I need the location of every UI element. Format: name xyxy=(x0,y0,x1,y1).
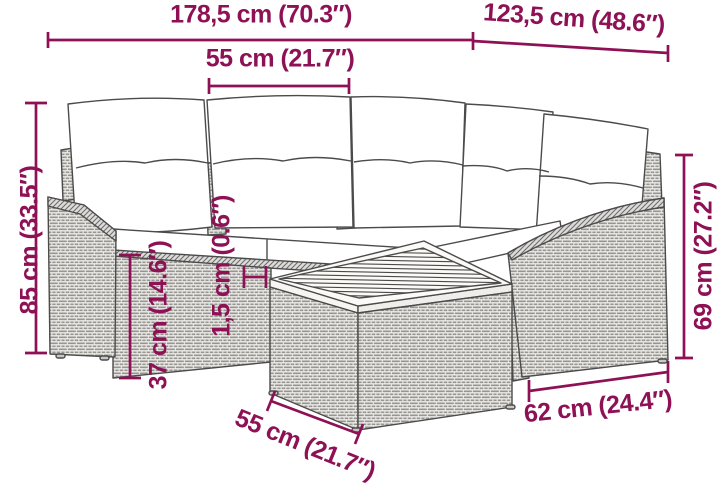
label-total-height: 85 cm (33.5″) xyxy=(18,166,43,315)
label-right-section-height: 69 cm (27.2″) xyxy=(692,182,717,331)
back-cushions xyxy=(68,96,648,243)
dim-line-right-width xyxy=(473,41,668,62)
product-dimension-diagram: 178,5 cm (70.3″) 123,5 cm (48.6″) 55 cm … xyxy=(0,0,720,490)
label-tabletop-thickness: 1,5 cm (0.6″) xyxy=(210,195,235,337)
label-cushion-width: 55 cm (21.7″) xyxy=(206,47,355,72)
dim-line-cushion-width xyxy=(209,78,349,94)
corner-sofa xyxy=(48,96,668,432)
label-seat-height: 37 cm (14.6″) xyxy=(147,241,172,390)
label-total-width: 178,5 cm (70.3″) xyxy=(170,3,352,28)
